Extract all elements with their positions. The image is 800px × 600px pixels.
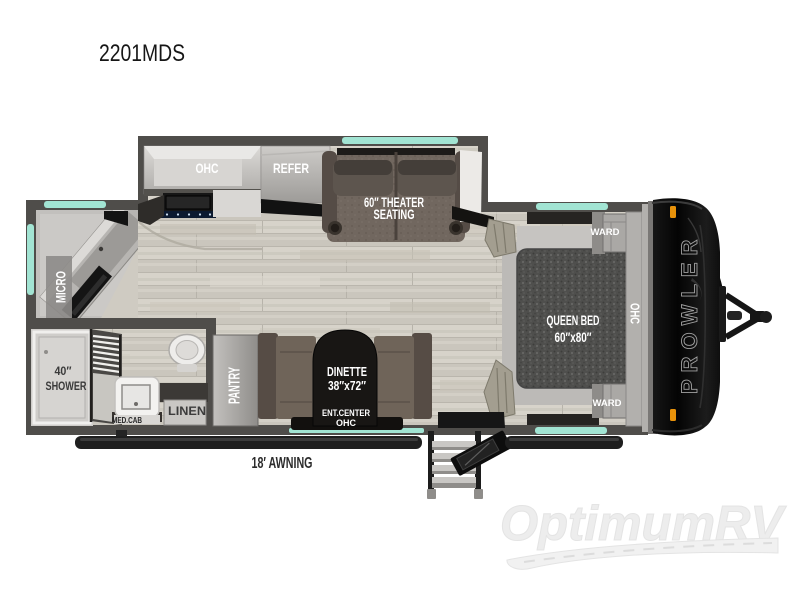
svg-text:MED.CAB: MED.CAB	[112, 416, 142, 425]
svg-text:38″x72″: 38″x72″	[328, 378, 366, 393]
svg-text:OHC: OHC	[336, 418, 356, 429]
svg-text:WARD: WARD	[591, 227, 620, 238]
svg-text:PANTRY: PANTRY	[227, 367, 244, 404]
svg-text:40″: 40″	[55, 366, 72, 378]
svg-text:LINEN: LINEN	[168, 404, 206, 418]
svg-text:DINETTE: DINETTE	[327, 365, 367, 379]
svg-text:SHOWER: SHOWER	[46, 381, 88, 393]
svg-text:MICRO: MICRO	[53, 271, 69, 303]
svg-text:WARD: WARD	[593, 398, 622, 409]
svg-text:OHC: OHC	[196, 160, 219, 176]
svg-text:60″x80″: 60″x80″	[555, 329, 592, 345]
svg-text:PROWLER: PROWLER	[677, 233, 702, 394]
svg-text:18′ AWNING: 18′ AWNING	[252, 455, 313, 472]
svg-text:OHC: OHC	[628, 303, 642, 324]
svg-text:REFER: REFER	[273, 160, 309, 176]
svg-text:QUEEN BED: QUEEN BED	[547, 312, 600, 328]
svg-text:SEATING: SEATING	[374, 207, 415, 222]
svg-text:2201MDS: 2201MDS	[99, 40, 185, 67]
